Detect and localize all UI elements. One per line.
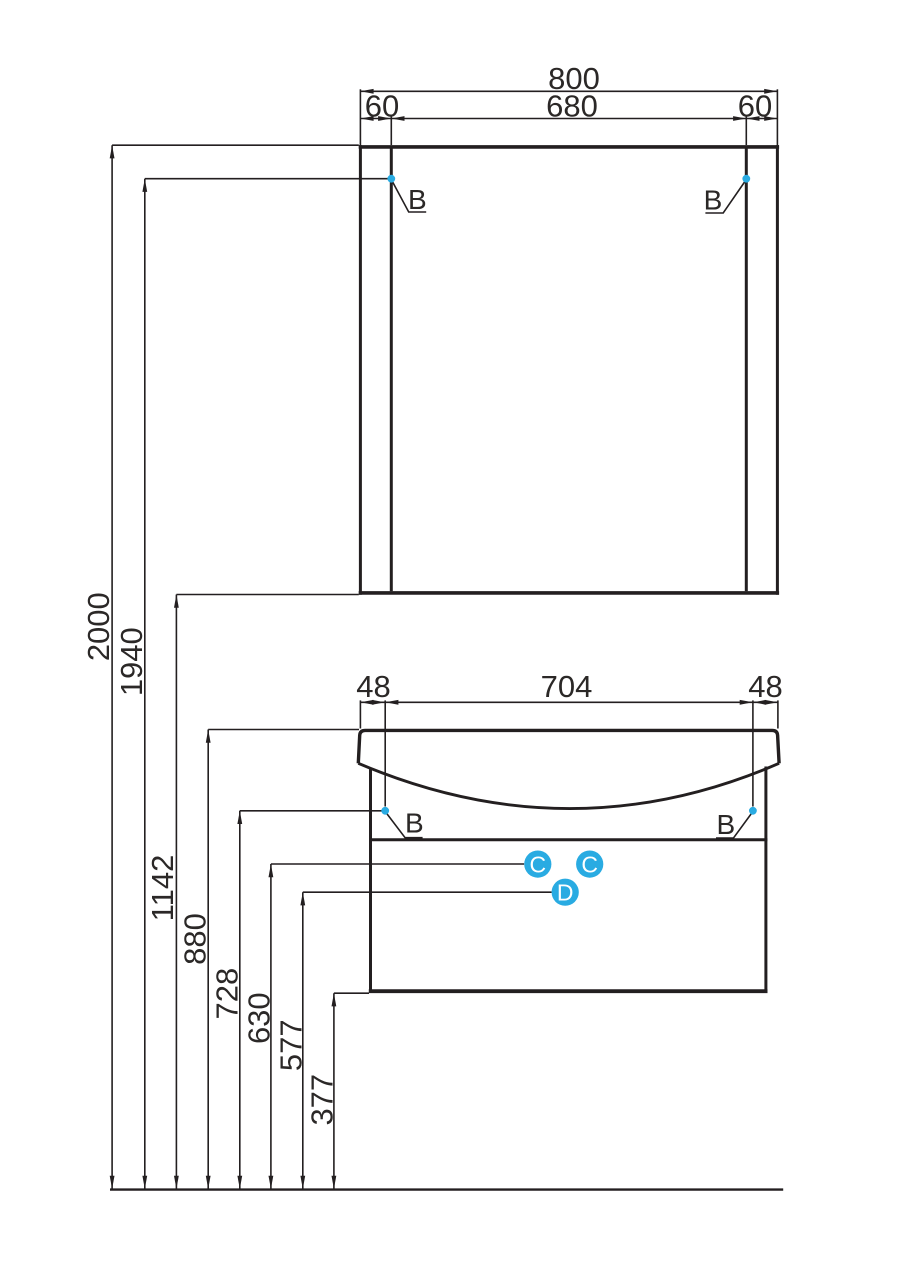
svg-text:48: 48 xyxy=(748,669,782,704)
svg-text:377: 377 xyxy=(304,1074,339,1126)
svg-text:60: 60 xyxy=(365,88,399,123)
svg-text:1940: 1940 xyxy=(114,627,149,696)
svg-text:728: 728 xyxy=(209,968,244,1020)
svg-text:880: 880 xyxy=(178,913,213,965)
svg-text:1142: 1142 xyxy=(145,855,180,922)
svg-text:C: C xyxy=(529,851,546,877)
svg-text:60: 60 xyxy=(738,88,772,123)
svg-text:B: B xyxy=(405,807,424,838)
svg-text:577: 577 xyxy=(273,1019,308,1071)
svg-text:630: 630 xyxy=(242,992,277,1044)
svg-text:2000: 2000 xyxy=(81,592,116,661)
svg-text:C: C xyxy=(581,851,598,877)
svg-text:B: B xyxy=(408,184,427,215)
svg-text:B: B xyxy=(704,185,723,216)
svg-text:D: D xyxy=(557,879,574,905)
svg-text:704: 704 xyxy=(541,669,593,704)
svg-text:B: B xyxy=(717,809,736,840)
svg-text:48: 48 xyxy=(356,669,390,704)
svg-text:680: 680 xyxy=(546,88,598,123)
